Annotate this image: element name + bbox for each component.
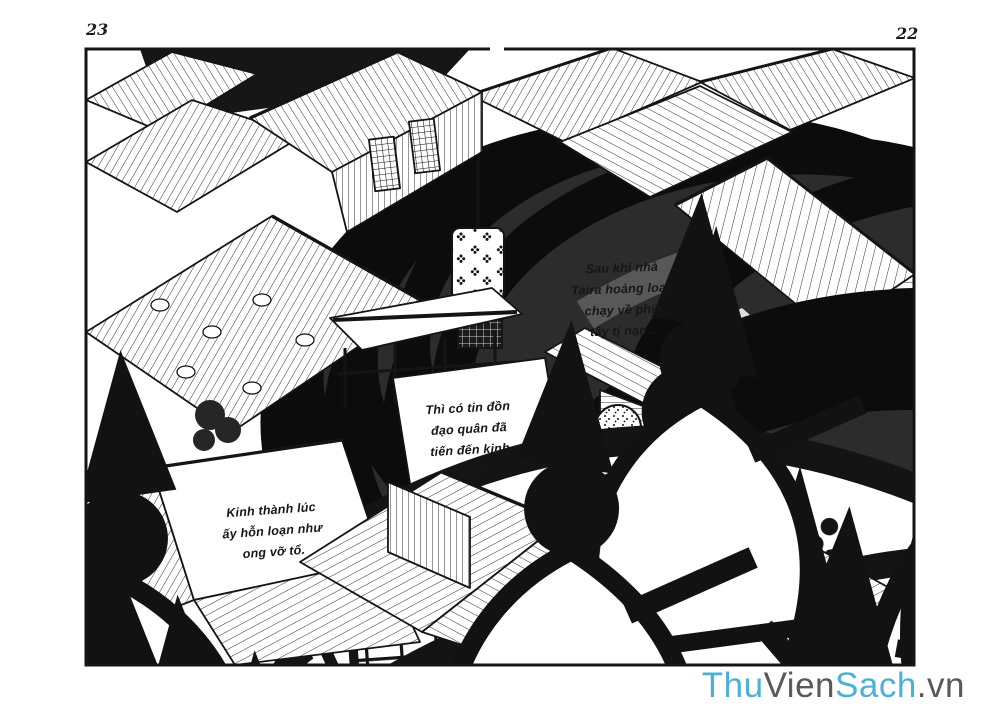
watermark-part: Sach [835,666,917,705]
page-number-left: 23 [86,20,108,39]
watermark-part: Thu [702,666,764,705]
caption-chaos: Kinh thành lúc ấy hỗn loạn như ong vỡ tổ… [198,495,347,568]
caption-rumor: Thì có tin đồn đạo quân đã tiến đến kinh… [400,395,539,486]
page-split-gap [490,45,504,53]
watermark-part: Vien [764,666,835,705]
manga-page: 23 22 Sau khi nhà Taira hoảng loạn chạy … [0,0,999,714]
manga-artwork [0,0,999,714]
site-watermark: ThuVienSach.vn [702,666,965,706]
caption-taira: Sau khi nhà Taira hoảng loạn chạy về phí… [547,255,700,344]
page-number-right: 22 [896,24,918,43]
watermark-part: .vn [917,666,965,705]
